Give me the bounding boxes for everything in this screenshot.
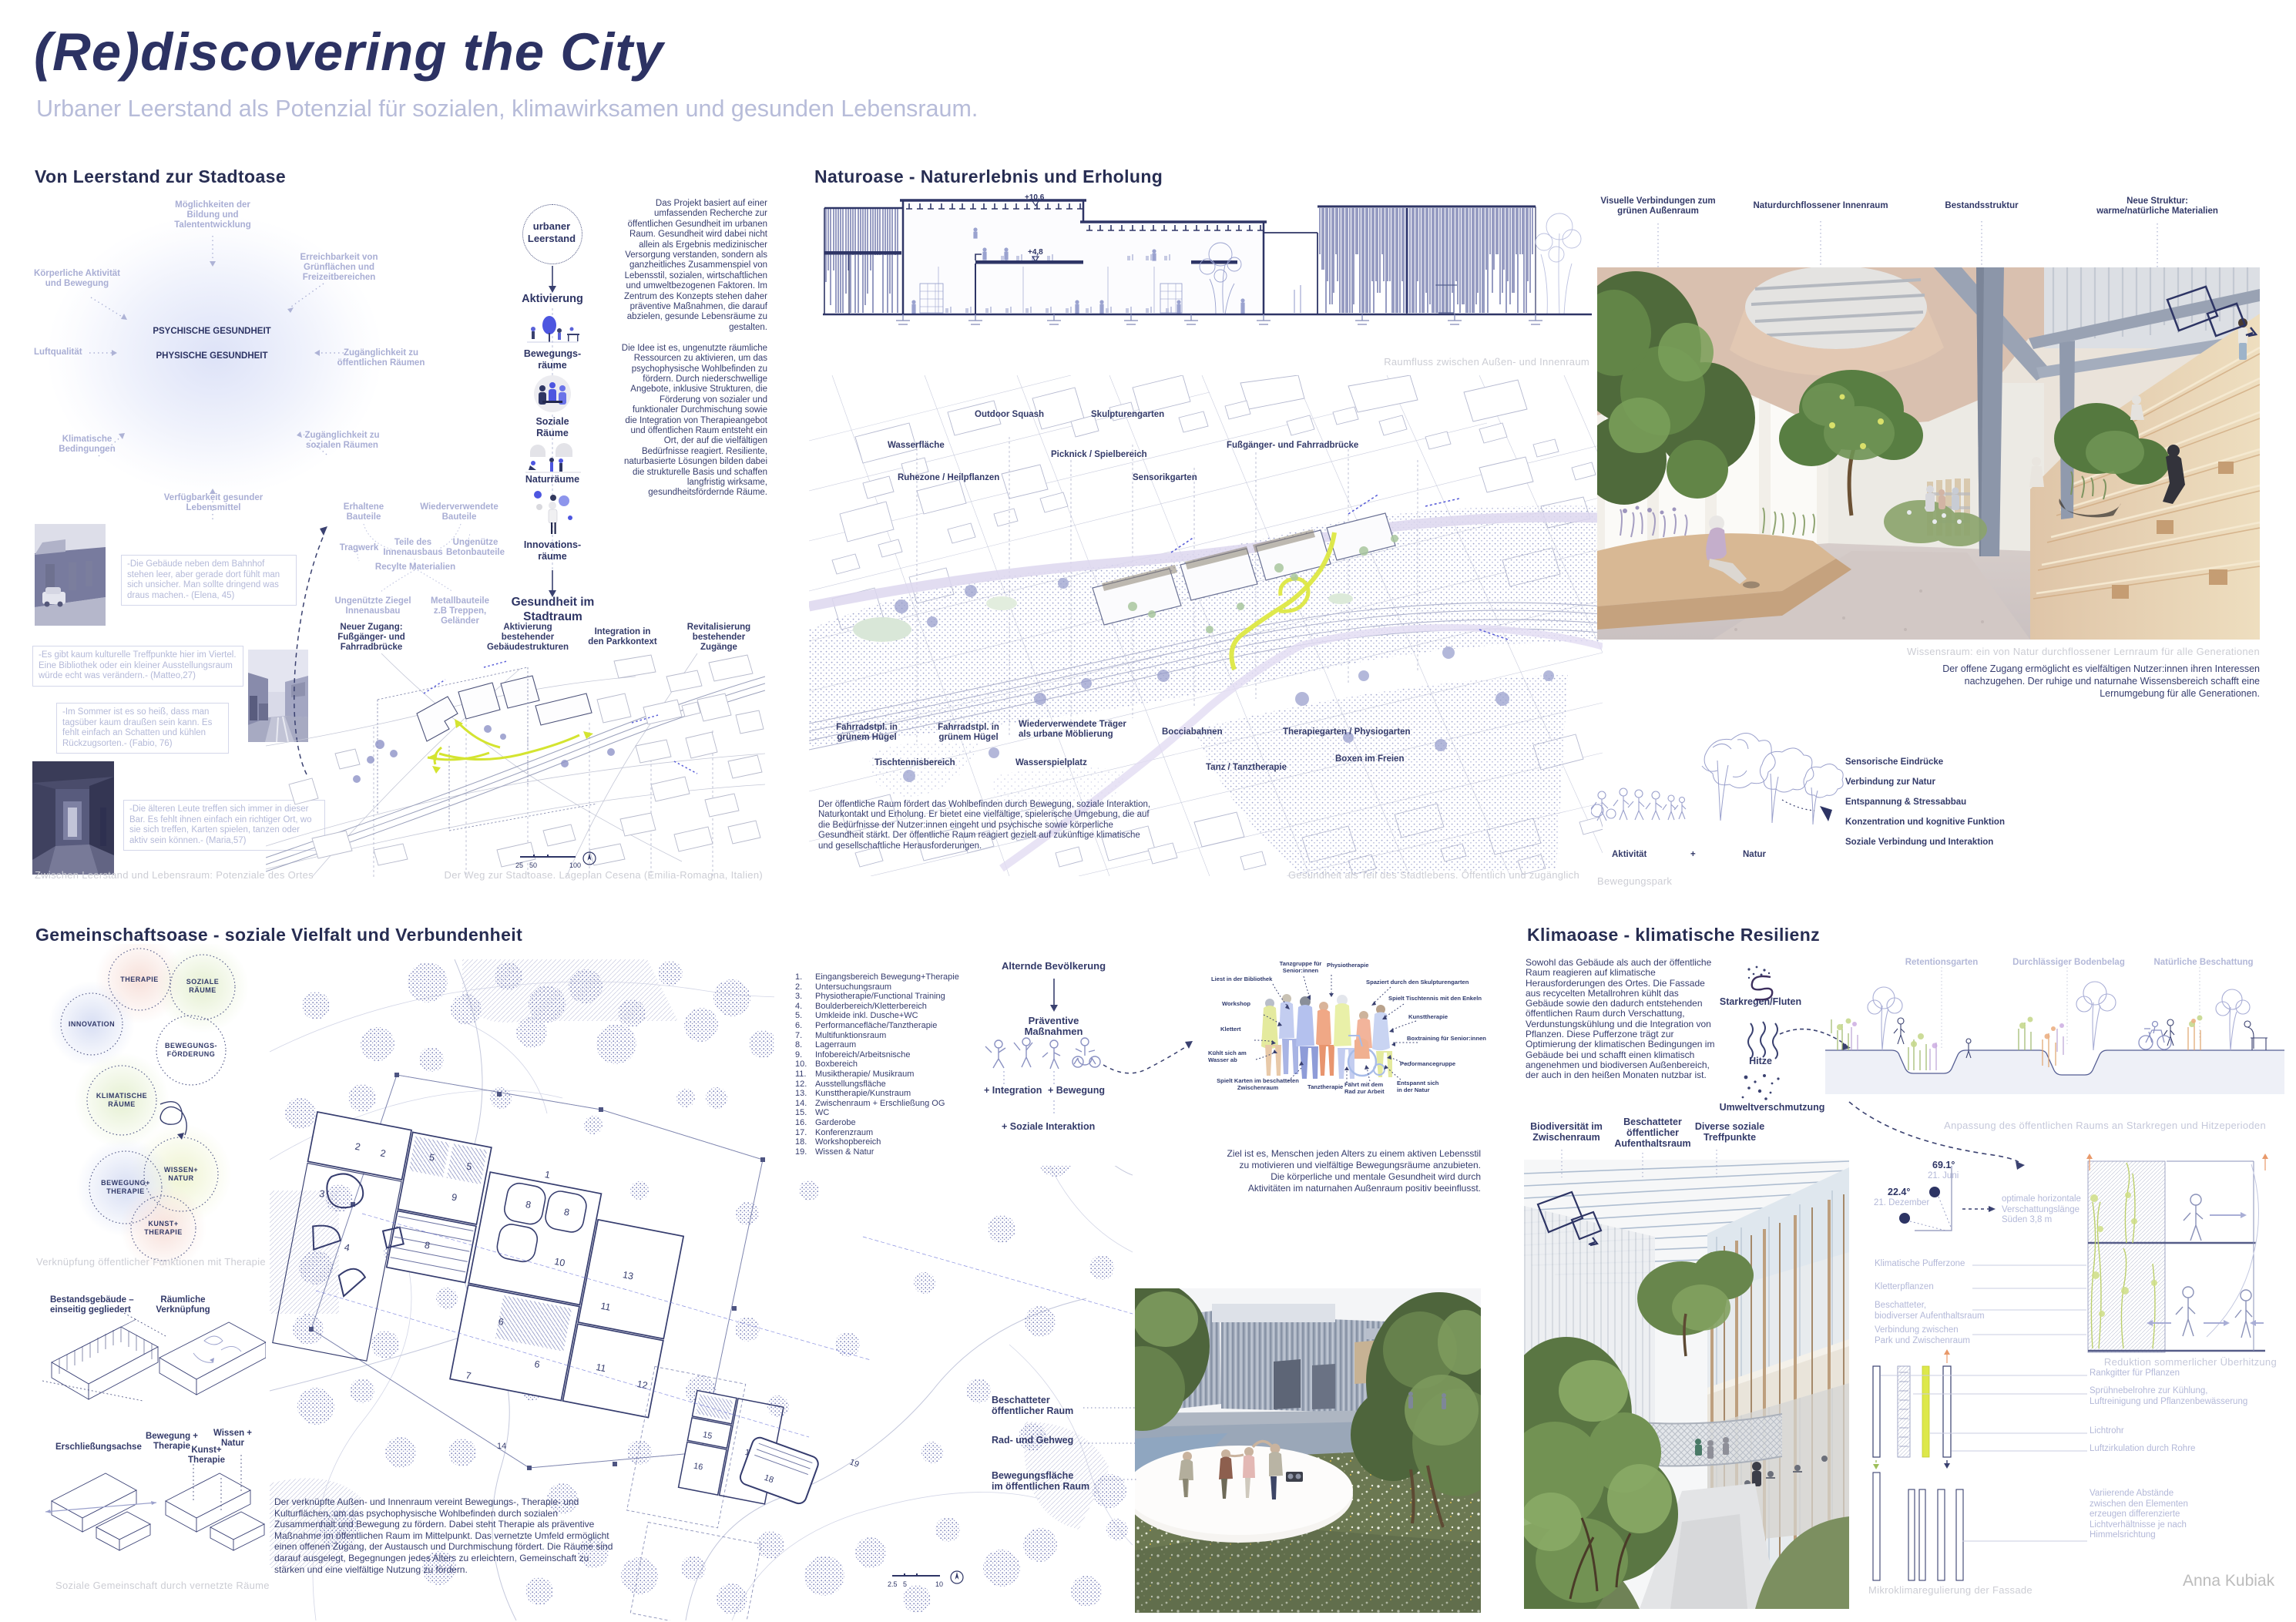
svg-text:WISSEN+: WISSEN+ xyxy=(164,1166,198,1174)
svg-text:10: 10 xyxy=(553,1256,566,1268)
svg-text:+10,6: +10,6 xyxy=(1025,193,1045,202)
svg-text:11: 11 xyxy=(595,1362,606,1374)
svg-text:THERAPIE: THERAPIE xyxy=(120,976,159,983)
svg-text:25: 25 xyxy=(515,861,523,869)
svg-text:14: 14 xyxy=(497,1442,506,1451)
svg-text:RÄUME: RÄUME xyxy=(108,1100,136,1108)
svg-text:FÖRDERUNG: FÖRDERUNG xyxy=(167,1050,216,1058)
svg-text:INNOVATION: INNOVATION xyxy=(69,1020,115,1028)
svg-text:KUNST+: KUNST+ xyxy=(148,1220,178,1227)
svg-text:16: 16 xyxy=(693,1462,703,1473)
svg-text:100: 100 xyxy=(569,861,581,869)
svg-text:2.5: 2.5 xyxy=(888,1580,898,1588)
svg-text:1: 1 xyxy=(544,1169,552,1180)
svg-text:12: 12 xyxy=(636,1379,649,1391)
svg-text:11: 11 xyxy=(599,1301,611,1313)
svg-text:RÄUME: RÄUME xyxy=(189,986,217,994)
svg-text:15: 15 xyxy=(702,1430,713,1441)
svg-text:KLIMATISCHE: KLIMATISCHE xyxy=(96,1092,147,1100)
svg-text:BEWEGUNGS-: BEWEGUNGS- xyxy=(165,1042,217,1049)
svg-text:5: 5 xyxy=(903,1580,907,1588)
svg-text:50: 50 xyxy=(529,861,537,869)
svg-text:NATUR: NATUR xyxy=(168,1174,193,1182)
svg-text:10: 10 xyxy=(935,1580,943,1588)
svg-text:BEWEGUNG+: BEWEGUNG+ xyxy=(101,1179,150,1187)
svg-text:SOZIALE: SOZIALE xyxy=(186,978,220,986)
svg-text:+4,8: +4,8 xyxy=(1028,248,1043,257)
svg-text:4: 4 xyxy=(344,1242,351,1254)
svg-text:19: 19 xyxy=(848,1458,861,1469)
svg-text:THERAPIE: THERAPIE xyxy=(106,1187,145,1195)
svg-text:THERAPIE: THERAPIE xyxy=(144,1228,183,1236)
svg-text:13: 13 xyxy=(622,1269,634,1281)
